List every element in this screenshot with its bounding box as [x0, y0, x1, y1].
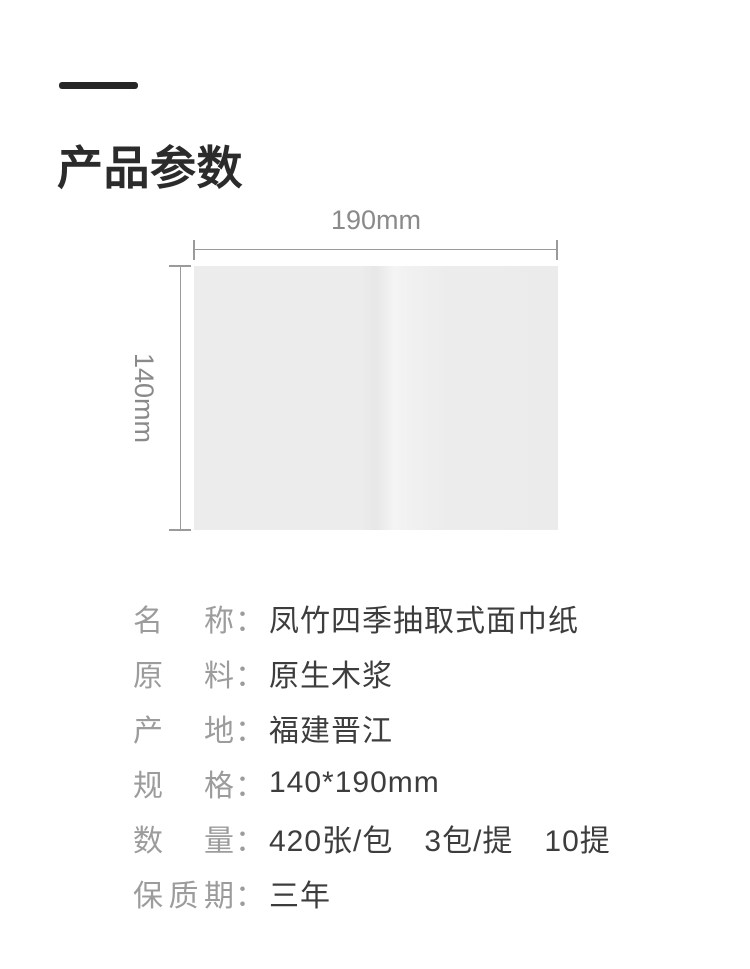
width-dimension-label: 190mm [194, 205, 558, 236]
spec-row-origin: 产地 ： 福建晋江 [133, 700, 693, 755]
spec-label: 保质期 [133, 871, 235, 915]
height-dimension-label: 140mm [128, 266, 159, 530]
spec-value: 三年 [269, 871, 331, 915]
spec-row-name: 名称 ： 凤竹四季抽取式面巾纸 [133, 590, 693, 645]
spec-row-shelf-life: 保质期 ： 三年 [133, 865, 693, 920]
spec-label: 原料 [133, 651, 235, 695]
spec-value: 420张/包 3包/提 10提 [269, 816, 611, 860]
width-dimension-tick-left [193, 240, 195, 260]
spec-value: 原生木浆 [269, 651, 393, 695]
height-dimension-line [180, 266, 181, 530]
spec-value: 福建晋江 [269, 706, 393, 750]
spec-value: 140*190mm [269, 766, 440, 800]
spec-colon: ： [235, 816, 265, 860]
spec-label: 名称 [133, 596, 235, 640]
spec-label: 产地 [133, 706, 235, 750]
spec-colon: ： [235, 651, 265, 695]
page-title: 产品参数 [57, 141, 243, 196]
spec-label: 数量 [133, 816, 235, 860]
product-parameters-page: 产品参数 190mm 140mm 名称 ： 凤竹四季抽取式面巾纸 原料 ： 原生… [0, 0, 750, 969]
spec-list: 名称 ： 凤竹四季抽取式面巾纸 原料 ： 原生木浆 产地 ： 福建晋江 规格 ：… [133, 590, 693, 920]
tissue-sheet-diagram [194, 266, 558, 530]
spec-row-material: 原料 ： 原生木浆 [133, 645, 693, 700]
width-dimension-line [194, 249, 558, 250]
spec-row-quantity: 数量 ： 420张/包 3包/提 10提 [133, 810, 693, 865]
spec-colon: ： [235, 761, 265, 805]
spec-colon: ： [235, 706, 265, 750]
spec-colon: ： [235, 596, 265, 640]
height-dimension-tick-top [169, 265, 191, 267]
height-dimension-tick-bottom [169, 529, 191, 531]
title-accent-dash [59, 82, 138, 89]
spec-value: 凤竹四季抽取式面巾纸 [269, 596, 579, 640]
spec-label: 规格 [133, 761, 235, 805]
spec-colon: ： [235, 871, 265, 915]
width-dimension-tick-right [556, 240, 558, 260]
spec-row-size: 规格 ： 140*190mm [133, 755, 693, 810]
